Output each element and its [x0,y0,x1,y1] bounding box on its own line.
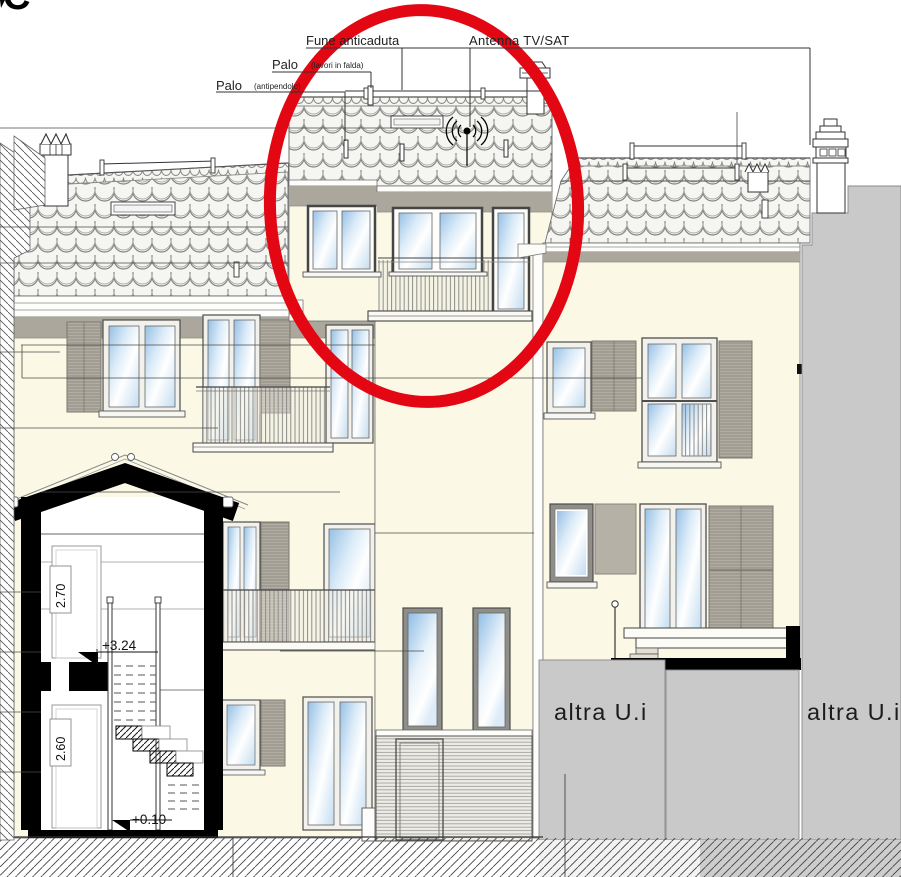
svg-text:Palo: Palo [272,57,298,72]
svg-text:(antipendolo): (antipendolo) [254,82,301,91]
svg-text:2.60: 2.60 [54,737,68,761]
svg-text:(lavori in falda): (lavori in falda) [311,61,364,70]
svg-text:C: C [3,0,30,18]
svg-text:Fune anticaduta: Fune anticaduta [306,33,400,48]
svg-text:Palo: Palo [216,78,242,93]
svg-text:2.70: 2.70 [54,584,68,608]
svg-text:Antenna TV/SAT: Antenna TV/SAT [469,33,570,48]
svg-text:+0.10: +0.10 [132,812,166,827]
svg-text:altra U.i: altra U.i [807,699,901,725]
svg-text:+3.24: +3.24 [102,638,137,653]
svg-text:altra U.i: altra U.i [554,699,648,725]
